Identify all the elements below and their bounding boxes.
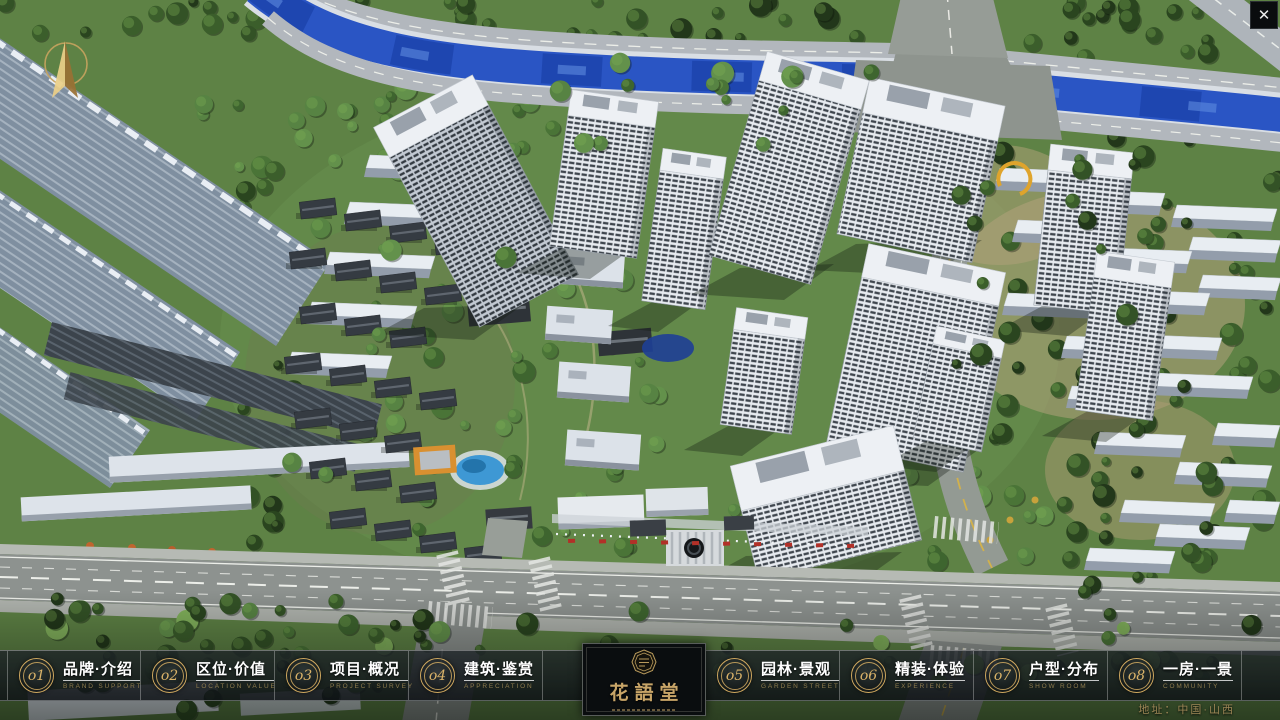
brand-logo[interactable]: 花語堂	[582, 643, 706, 716]
nav-label-en: PROJECT SURVEY	[330, 683, 408, 690]
project-address: 地址：中国·山西	[1138, 701, 1235, 717]
nav-label-cn: 一房·一景	[1163, 661, 1233, 678]
nav-underline	[895, 680, 965, 681]
nav-label-cn: 品牌·介绍	[63, 661, 140, 678]
nav-number-badge: o7	[985, 658, 1020, 693]
nav-label-cn: 区位·价值	[196, 661, 274, 678]
nav-number-badge: o5	[717, 658, 752, 693]
nav-label-en: SHOW ROOM	[1029, 683, 1099, 690]
nav-label-en: APPRECIATION	[464, 683, 534, 690]
nav-label-en: COMMUNITY	[1163, 683, 1233, 690]
nav-underline	[1029, 680, 1099, 681]
brand-seal-icon	[630, 648, 658, 676]
nav-label-en: LOCATION VALUE	[196, 683, 274, 690]
nav-item-landscape[interactable]: o5 园林·景观GARDEN STREET	[706, 651, 840, 700]
nav-label-cn: 项目·概况	[330, 661, 408, 678]
nav-underline	[330, 680, 408, 681]
nav-item-location-value[interactable]: o2 区位·价值LOCATION VALUE	[141, 651, 275, 700]
nav-item-project-overview[interactable]: o3 项目·概况PROJECT SURVEY	[275, 651, 409, 700]
masterplan-aerial-view[interactable]	[0, 0, 1280, 720]
nav-item-interior[interactable]: o6 精装·体验EXPERIENCE	[840, 651, 974, 700]
nav-number-badge: o8	[1119, 658, 1154, 693]
nav-item-community[interactable]: o8 一房·一景COMMUNITY	[1108, 651, 1242, 700]
close-icon: ✕	[1258, 8, 1271, 23]
nav-underline	[1163, 680, 1233, 681]
nav-label-cn: 建筑·鉴赏	[464, 661, 534, 678]
brand-title: 花語堂	[603, 678, 684, 705]
nav-item-floorplan[interactable]: o7 户型·分布SHOW ROOM	[974, 651, 1108, 700]
nav-number-badge: o3	[286, 658, 321, 693]
nav-label-cn: 园林·景观	[761, 661, 839, 678]
close-button[interactable]: ✕	[1250, 1, 1278, 29]
nav-item-brand-intro[interactable]: o1 品牌·介绍BRAND SUPPORT	[7, 651, 141, 700]
nav-number-badge: o4	[420, 658, 455, 693]
nav-number-badge: o2	[152, 658, 187, 693]
nav-label-cn: 户型·分布	[1029, 661, 1099, 678]
brand-tagline	[612, 709, 676, 711]
nav-number-badge: o6	[851, 658, 886, 693]
nav-label-en: BRAND SUPPORT	[63, 683, 140, 690]
nav-underline	[196, 680, 274, 681]
nav-label-cn: 精装·体验	[895, 661, 965, 678]
nav-label-en: GARDEN STREET	[761, 683, 839, 690]
nav-underline	[464, 680, 534, 681]
nav-underline	[761, 680, 839, 681]
nav-label-en: EXPERIENCE	[895, 683, 965, 690]
nav-item-architecture[interactable]: o4 建筑·鉴赏APPRECIATION	[409, 651, 543, 700]
nav-underline	[63, 680, 140, 681]
compass-icon	[42, 38, 94, 106]
nav-number-badge: o1	[19, 658, 54, 693]
